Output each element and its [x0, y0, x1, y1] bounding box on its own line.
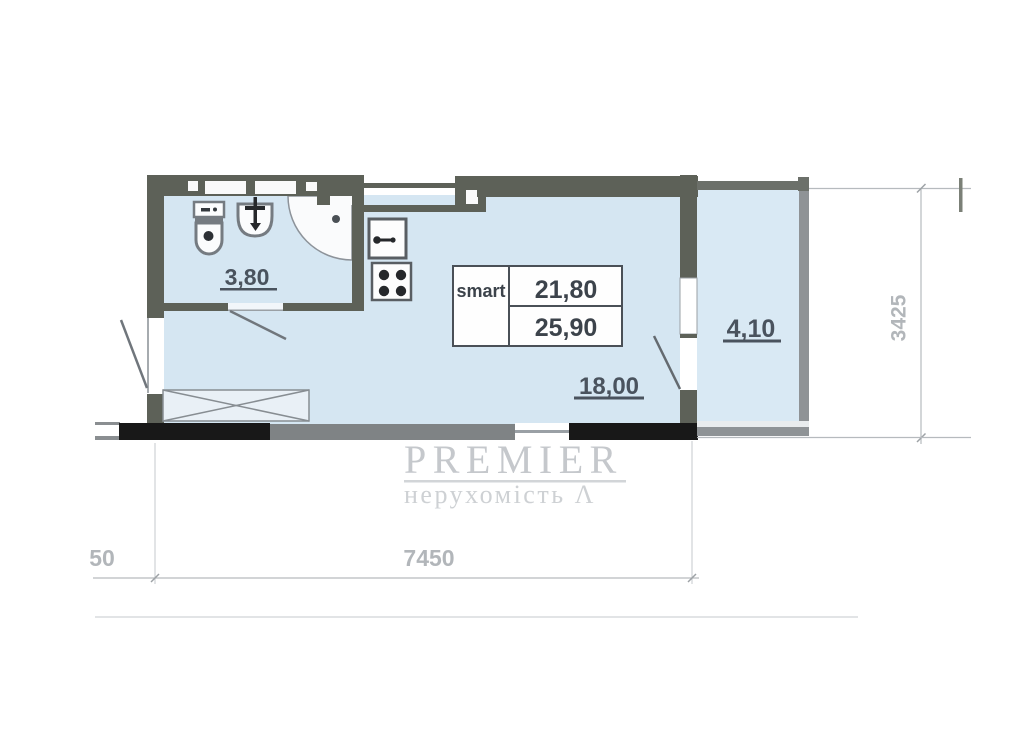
svg-text:21,80: 21,80	[535, 276, 598, 304]
svg-text:50: 50	[89, 545, 115, 571]
svg-text:4,10: 4,10	[727, 315, 776, 343]
svg-text:нерухомість Λ: нерухомість Λ	[404, 480, 596, 509]
svg-text:PREMIER: PREMIER	[404, 437, 623, 482]
svg-text:3425: 3425	[888, 294, 911, 341]
svg-text:25,90: 25,90	[535, 314, 598, 342]
svg-text:18,00: 18,00	[579, 373, 639, 400]
svg-text:3,80: 3,80	[225, 264, 270, 290]
svg-text:smart: smart	[456, 281, 505, 301]
svg-text:7450: 7450	[403, 545, 454, 571]
